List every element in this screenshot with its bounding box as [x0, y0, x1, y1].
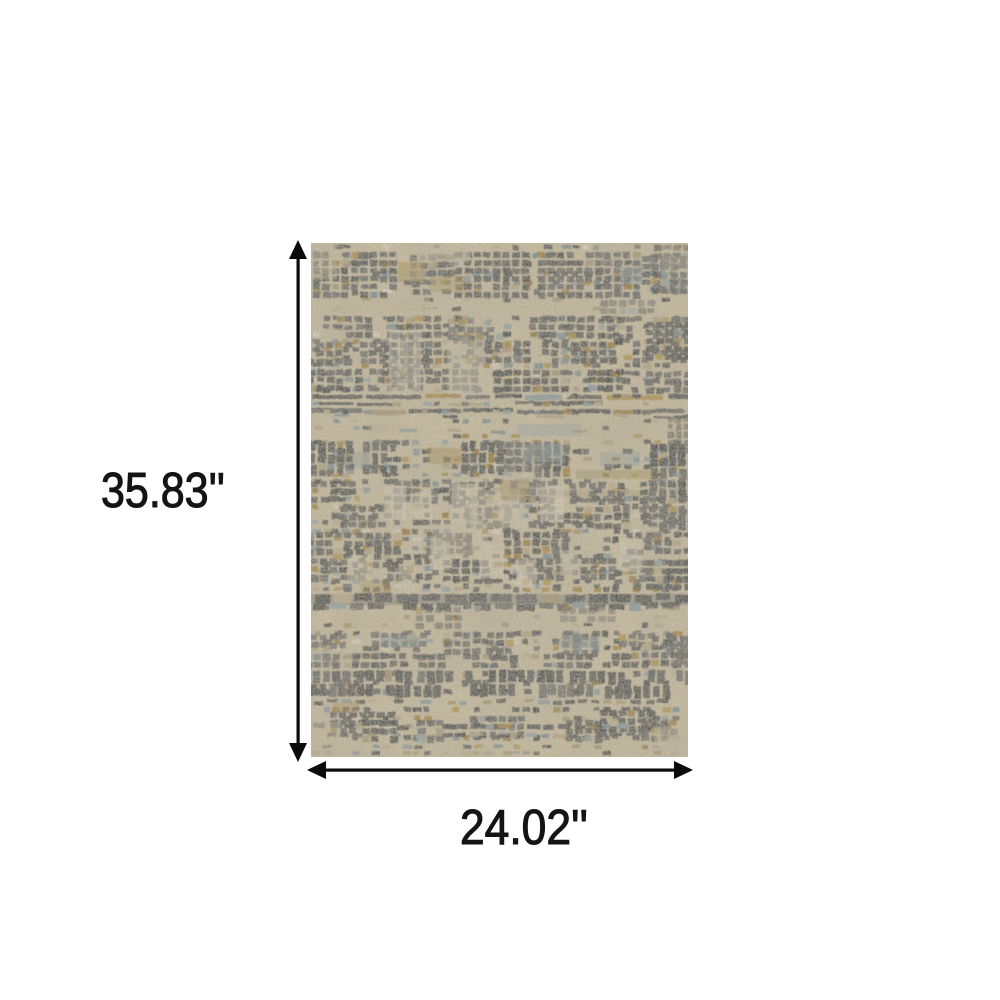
svg-text:35.83'': 35.83'' — [101, 464, 225, 518]
svg-text:24.02'': 24.02'' — [460, 801, 588, 855]
